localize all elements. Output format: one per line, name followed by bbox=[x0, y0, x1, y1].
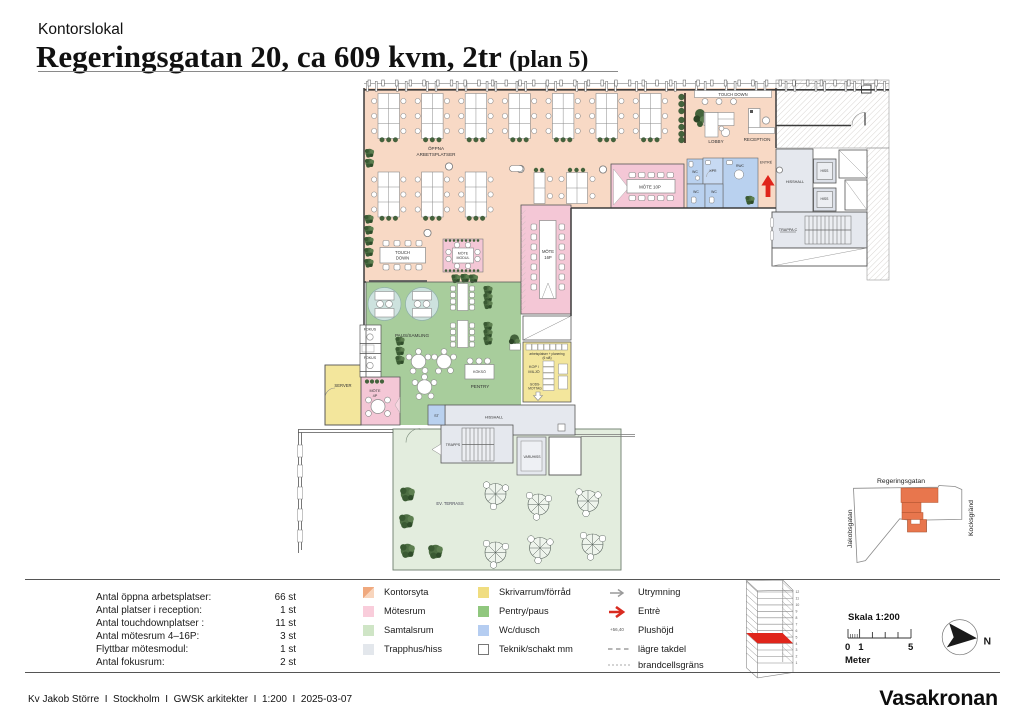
svg-text:9: 9 bbox=[796, 610, 798, 614]
svg-text:HISS: HISS bbox=[821, 169, 830, 173]
svg-text:MODUL: MODUL bbox=[457, 256, 470, 260]
svg-text:TRAPPS: TRAPPS bbox=[446, 443, 461, 447]
svg-text:2: 2 bbox=[796, 655, 798, 659]
svg-text:TRAPPA C: TRAPPA C bbox=[779, 228, 798, 232]
svg-text:DOWN: DOWN bbox=[396, 256, 409, 261]
svg-text:ENTRÉ: ENTRÉ bbox=[760, 160, 773, 165]
svg-text:6: 6 bbox=[796, 629, 798, 633]
svg-text:ARBETSPLATSER: ARBETSPLATSER bbox=[417, 152, 457, 157]
svg-text:(6 stå): (6 stå) bbox=[542, 356, 551, 360]
svg-text:PENTRY: PENTRY bbox=[471, 384, 490, 389]
svg-text:KOP /: KOP / bbox=[529, 365, 540, 369]
svg-text:SERVER: SERVER bbox=[334, 383, 351, 388]
svg-text:MÖTE: MÖTE bbox=[542, 249, 554, 254]
svg-text:10: 10 bbox=[796, 603, 800, 607]
svg-text:ÖPPNA: ÖPPNA bbox=[428, 145, 445, 151]
svg-text:Jakobsgatan: Jakobsgatan bbox=[847, 509, 854, 548]
svg-text:N: N bbox=[984, 636, 992, 648]
svg-text:LOBBY: LOBBY bbox=[708, 139, 723, 144]
svg-text:ST: ST bbox=[434, 414, 440, 418]
svg-text:4P: 4P bbox=[373, 394, 378, 398]
svg-text:TOUCH: TOUCH bbox=[395, 250, 410, 255]
svg-text:MÖTE: MÖTE bbox=[370, 389, 381, 393]
svg-text:HISS: HISS bbox=[821, 197, 830, 201]
svg-text:KÖKSÖ: KÖKSÖ bbox=[473, 370, 486, 374]
svg-text:HISSHALL: HISSHALL bbox=[786, 180, 804, 184]
svg-text:WC: WC bbox=[711, 190, 717, 194]
svg-text:VARUHISS: VARUHISS bbox=[523, 455, 541, 459]
svg-text:5: 5 bbox=[796, 635, 798, 639]
svg-text:3: 3 bbox=[796, 648, 798, 652]
svg-text:TOUCH DOWN: TOUCH DOWN bbox=[718, 92, 747, 97]
svg-text:Kocksgränd: Kocksgränd bbox=[968, 500, 975, 536]
svg-text:Regeringsgatan: Regeringsgatan bbox=[877, 478, 925, 485]
svg-text:12: 12 bbox=[796, 590, 800, 594]
svg-text:1: 1 bbox=[796, 661, 798, 665]
svg-text:MOTTAG: MOTTAG bbox=[528, 387, 542, 391]
svg-text:MÖTE 10P: MÖTE 10P bbox=[639, 185, 661, 190]
svg-text:RWC: RWC bbox=[736, 164, 745, 168]
svg-text:HISSHALL: HISSHALL bbox=[485, 416, 503, 420]
svg-text:4: 4 bbox=[796, 642, 798, 646]
svg-text:KPR: KPR bbox=[710, 169, 718, 173]
svg-text:16P: 16P bbox=[544, 255, 552, 260]
svg-text:WC: WC bbox=[693, 190, 699, 194]
svg-text:11: 11 bbox=[796, 597, 800, 601]
svg-text:MILJÖ: MILJÖ bbox=[528, 370, 539, 374]
svg-text:WC: WC bbox=[692, 170, 698, 174]
svg-text:EV. TERRASS: EV. TERRASS bbox=[436, 501, 463, 506]
svg-text:8: 8 bbox=[796, 616, 798, 620]
svg-text:7: 7 bbox=[796, 623, 798, 627]
svg-text:MÖTE: MÖTE bbox=[458, 252, 469, 256]
svg-text:RECEPTION: RECEPTION bbox=[744, 137, 771, 142]
